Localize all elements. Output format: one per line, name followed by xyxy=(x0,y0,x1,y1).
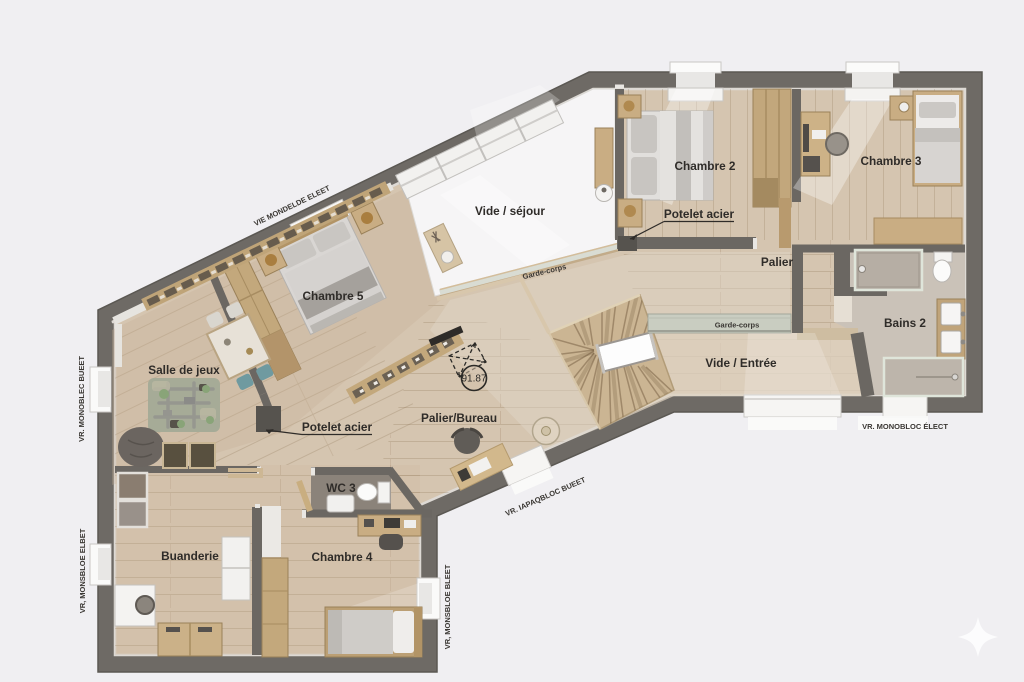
svg-text:VR, MONSBLOE BLEET: VR, MONSBLOE BLEET xyxy=(443,564,452,649)
svg-text:WC 3: WC 3 xyxy=(326,481,356,495)
svg-text:Chambre 4: Chambre 4 xyxy=(312,550,373,564)
svg-text:VR. MONOBLOC ÉLECT: VR. MONOBLOC ÉLECT xyxy=(862,422,948,431)
svg-text:Bains 2: Bains 2 xyxy=(884,316,926,330)
svg-text:Palier: Palier xyxy=(761,255,794,269)
svg-text:Chambre 2: Chambre 2 xyxy=(675,159,736,173)
svg-text:Potelet acier: Potelet acier xyxy=(664,207,735,221)
svg-text:Garde-corps: Garde-corps xyxy=(715,321,760,330)
svg-text:Chambre 3: Chambre 3 xyxy=(861,154,922,168)
svg-text:Vide / séjour: Vide / séjour xyxy=(475,204,545,218)
svg-text:Salle de jeux: Salle de jeux xyxy=(148,363,220,377)
svg-text:VR, MONSBLOE ELBET: VR, MONSBLOE ELBET xyxy=(78,528,87,613)
svg-text:Palier/Bureau: Palier/Bureau xyxy=(421,411,497,425)
svg-text:Chambre 5: Chambre 5 xyxy=(303,289,364,303)
svg-text:Potelet acier: Potelet acier xyxy=(302,420,373,434)
svg-text:Buanderie: Buanderie xyxy=(161,549,219,563)
svg-text:Vide / Entrée: Vide / Entrée xyxy=(705,356,777,370)
svg-text:91.87: 91.87 xyxy=(461,374,486,385)
svg-text:VR. MONOBLEC BUEET: VR. MONOBLEC BUEET xyxy=(77,356,86,442)
